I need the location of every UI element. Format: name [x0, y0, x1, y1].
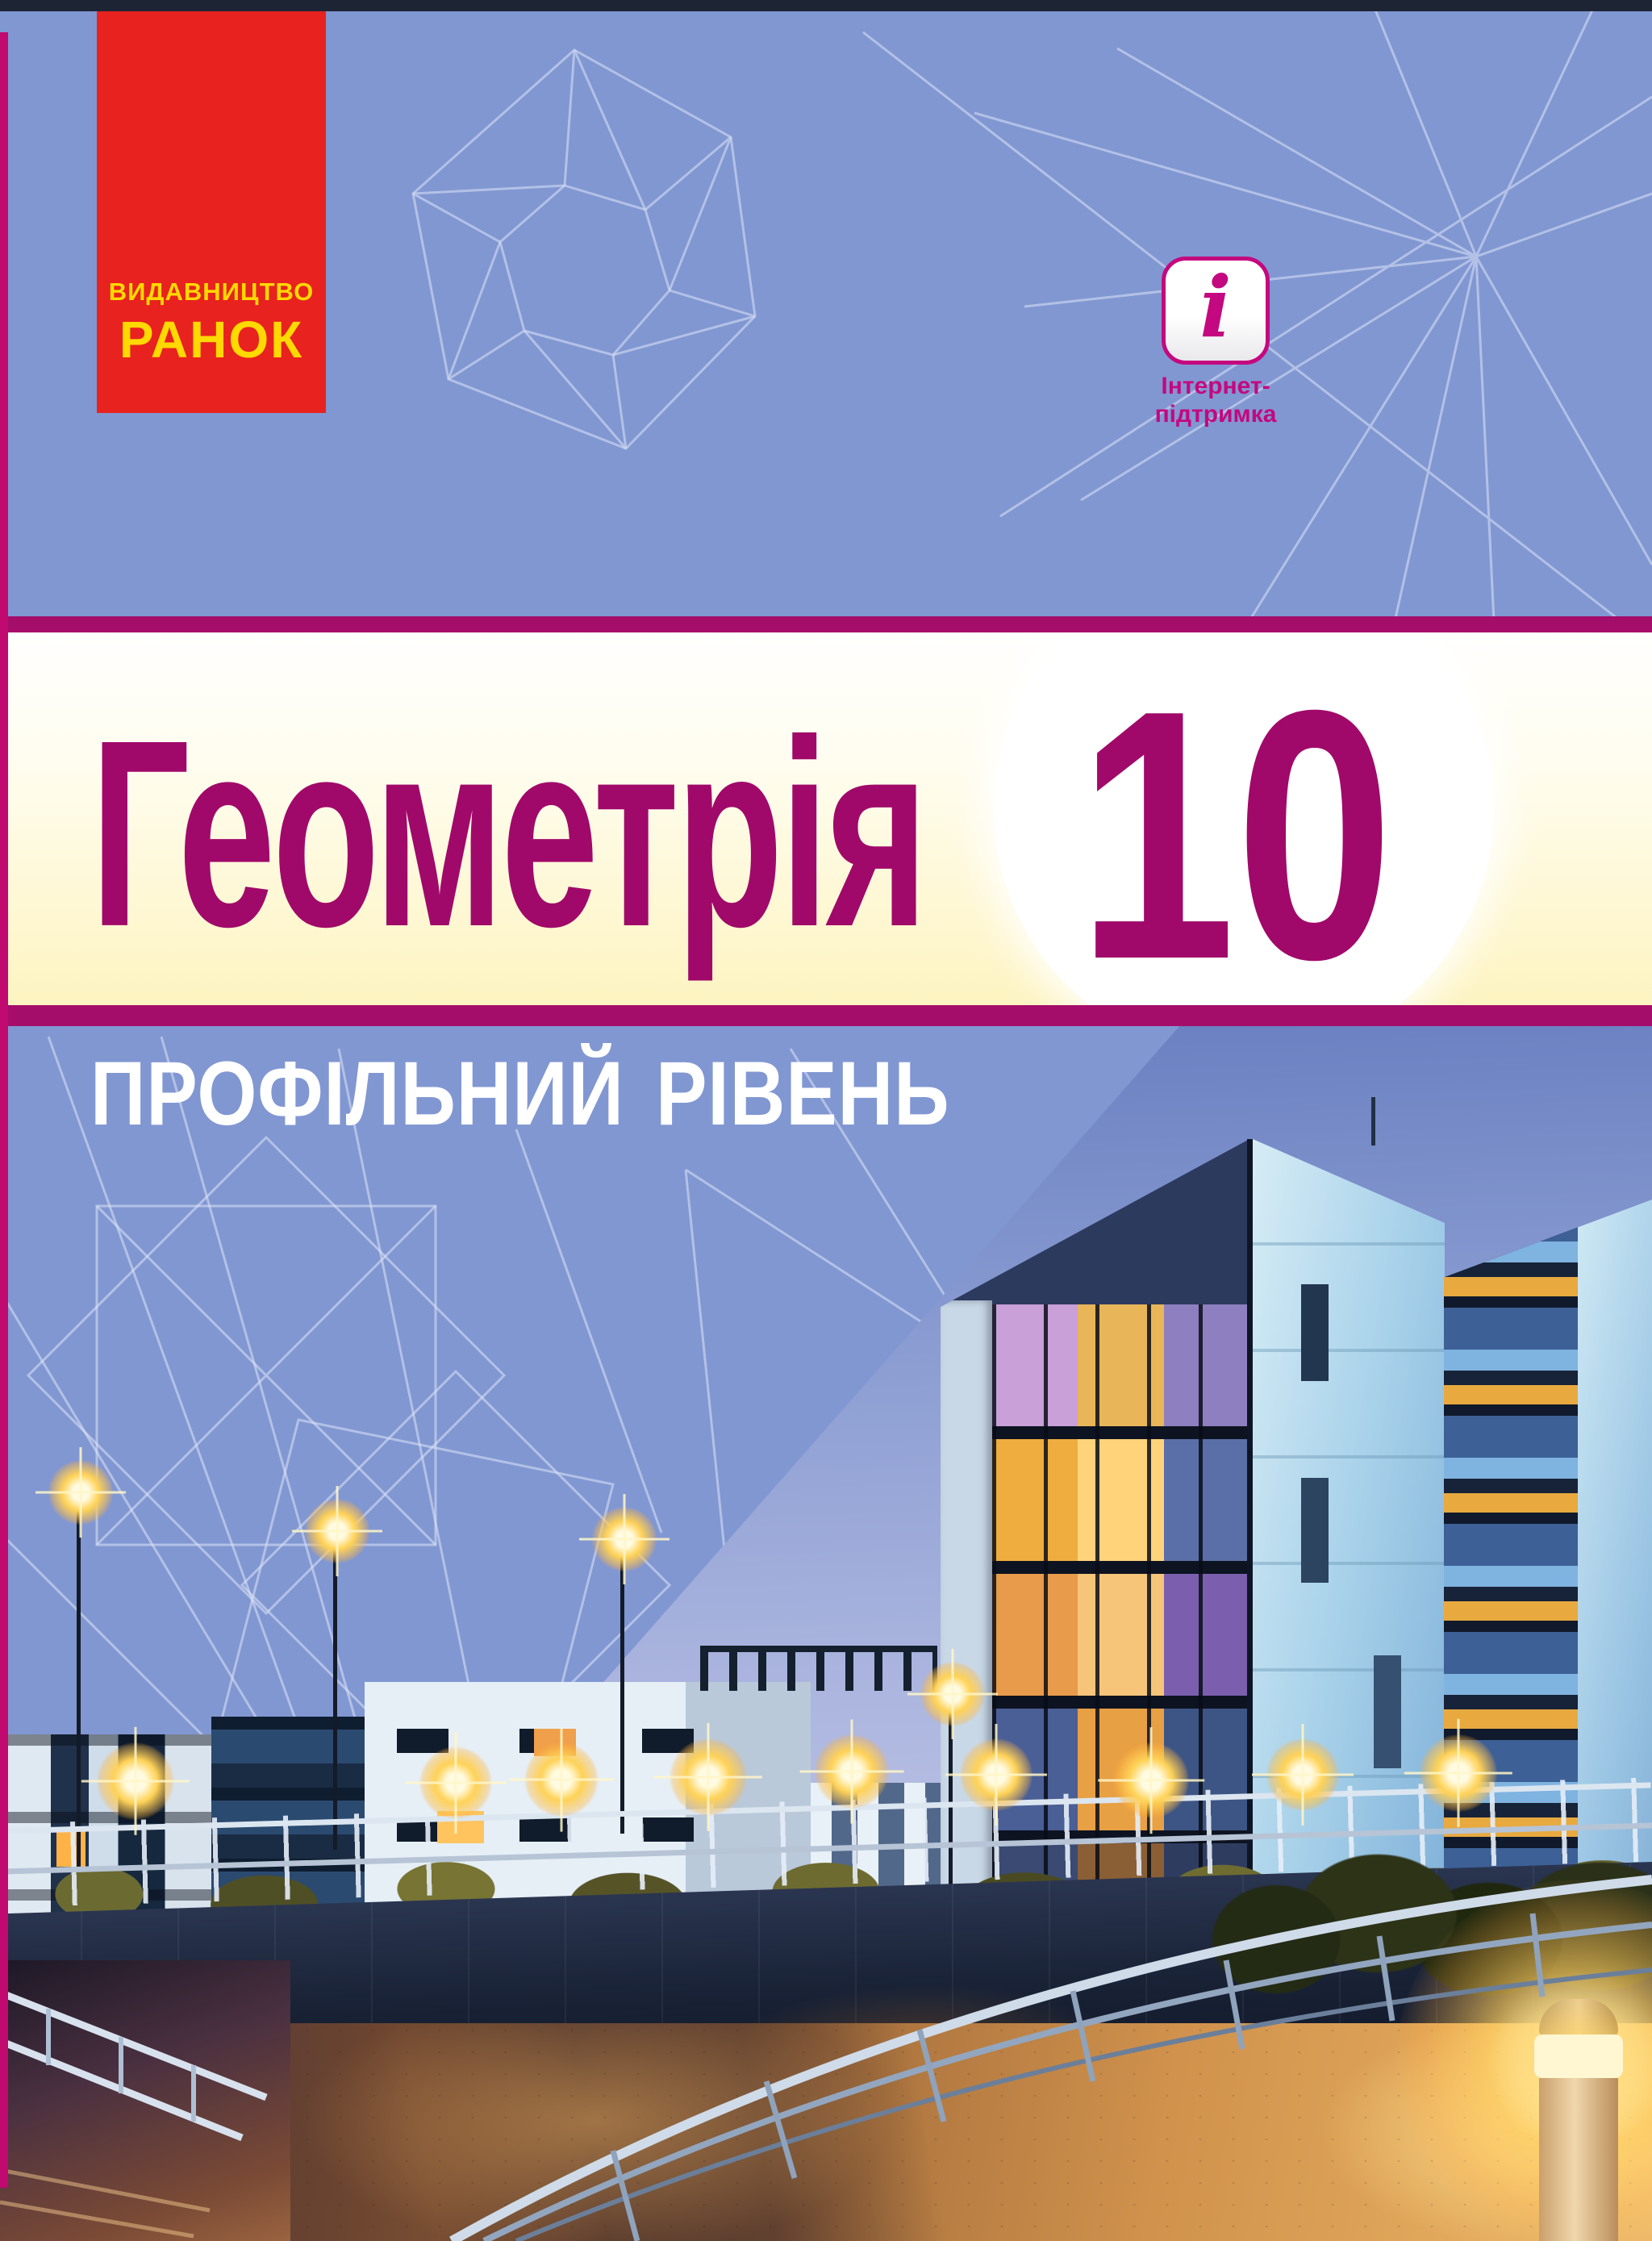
internet-support-badge: i — [1162, 257, 1270, 365]
badge-label-line2: підтримка — [1124, 401, 1307, 429]
title-band: Геометрія 10 — [0, 616, 1652, 1026]
badge-label-line1: Інтернет- — [1124, 373, 1307, 401]
book-cover: Геометрія 10 ПРОФІЛЬНИЙ РІВЕНЬ ВИДАВНИЦТ… — [0, 0, 1652, 2241]
grade-number: 10 — [1078, 658, 1394, 1013]
publisher-banner: ВИДАВНИЦТВО РАНОК — [97, 0, 326, 413]
band-stripe-top — [0, 616, 1652, 632]
book-title: Геометрія — [90, 700, 925, 966]
publisher-name: РАНОК — [119, 310, 303, 369]
level-label: ПРОФІЛЬНИЙ РІВЕНЬ — [90, 1049, 949, 1139]
internet-support-label: Інтернет- підтримка — [1124, 373, 1307, 429]
publisher-word: ВИДАВНИЦТВО — [109, 278, 315, 307]
info-icon: i — [1199, 265, 1232, 349]
left-edge-stripe — [0, 32, 8, 2188]
band-stripe-bottom — [0, 1005, 1652, 1026]
top-edge-bar — [0, 0, 1652, 11]
